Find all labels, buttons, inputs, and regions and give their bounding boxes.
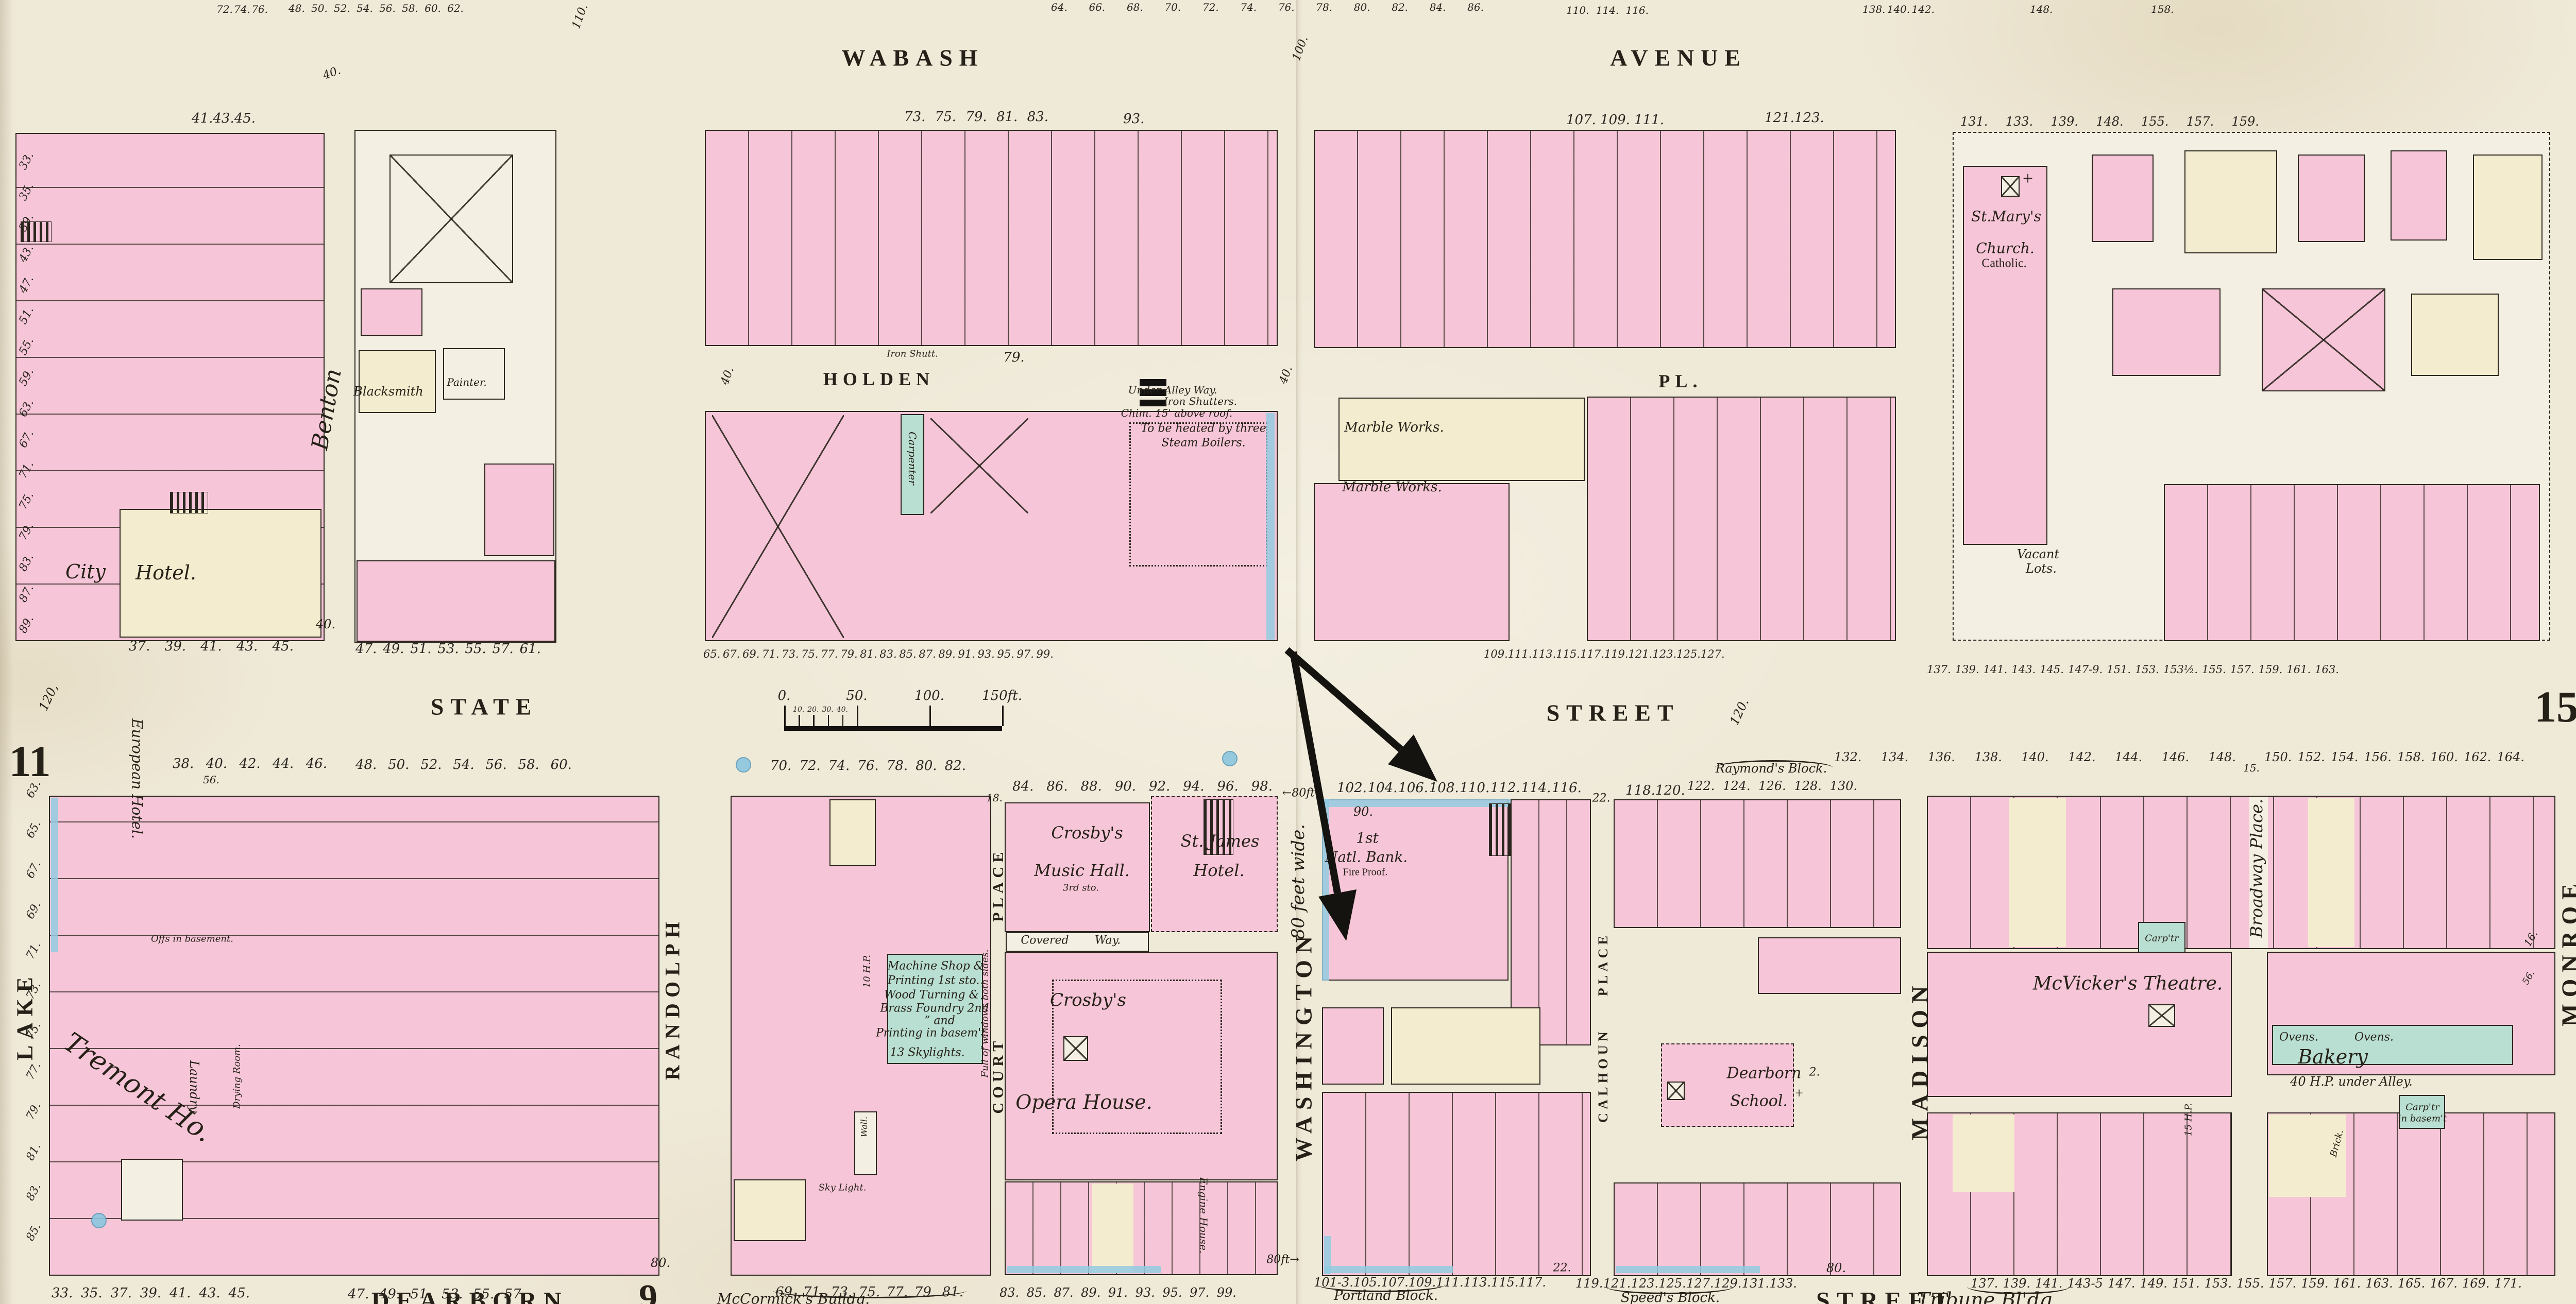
sanborn-insurance-map: WABASHAVENUESTATESTREETDEARBORNSTREETTri… <box>0 0 2576 1304</box>
annotation-arrow-1 <box>1287 650 1437 782</box>
annotation-arrow-2 <box>1293 652 1357 941</box>
annotation-arrows-overlay <box>0 0 2576 1304</box>
